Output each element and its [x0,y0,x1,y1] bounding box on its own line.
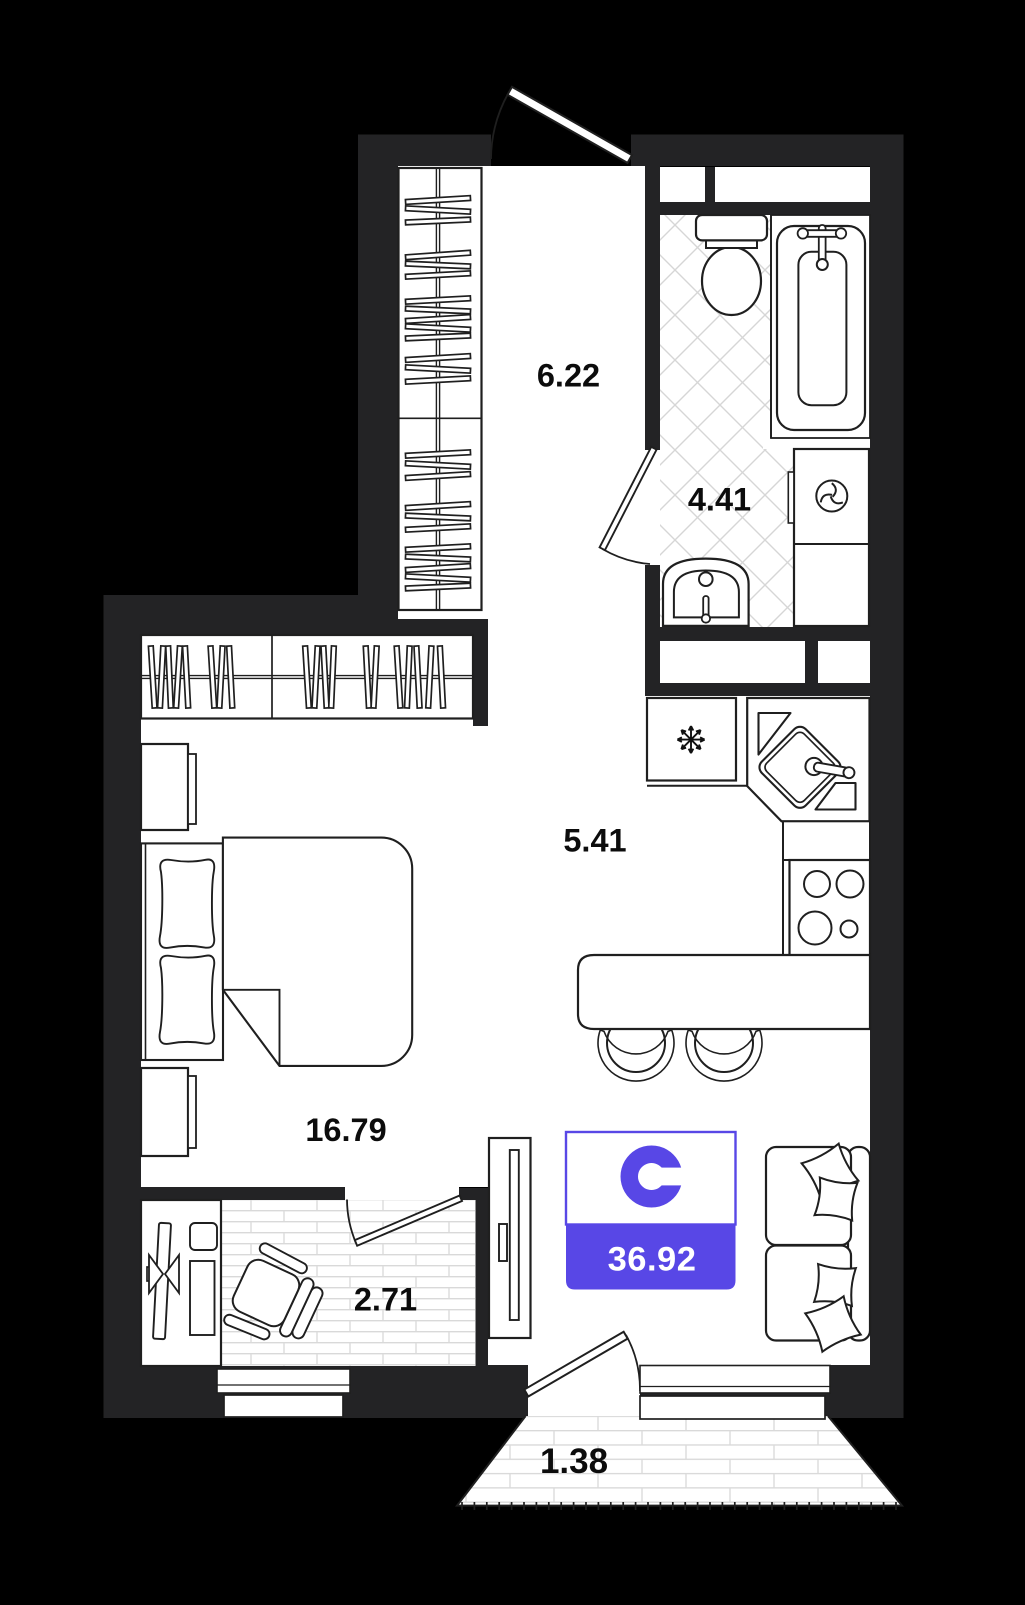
svg-text:1.38: 1.38 [540,1442,608,1481]
svg-text:2.71: 2.71 [354,1282,417,1318]
svg-text:4.41: 4.41 [688,482,751,518]
svg-text:16.79: 16.79 [305,1112,386,1148]
svg-text:5.41: 5.41 [563,823,626,859]
svg-text:6.22: 6.22 [537,358,600,394]
svg-text:36.92: 36.92 [608,1241,697,1279]
